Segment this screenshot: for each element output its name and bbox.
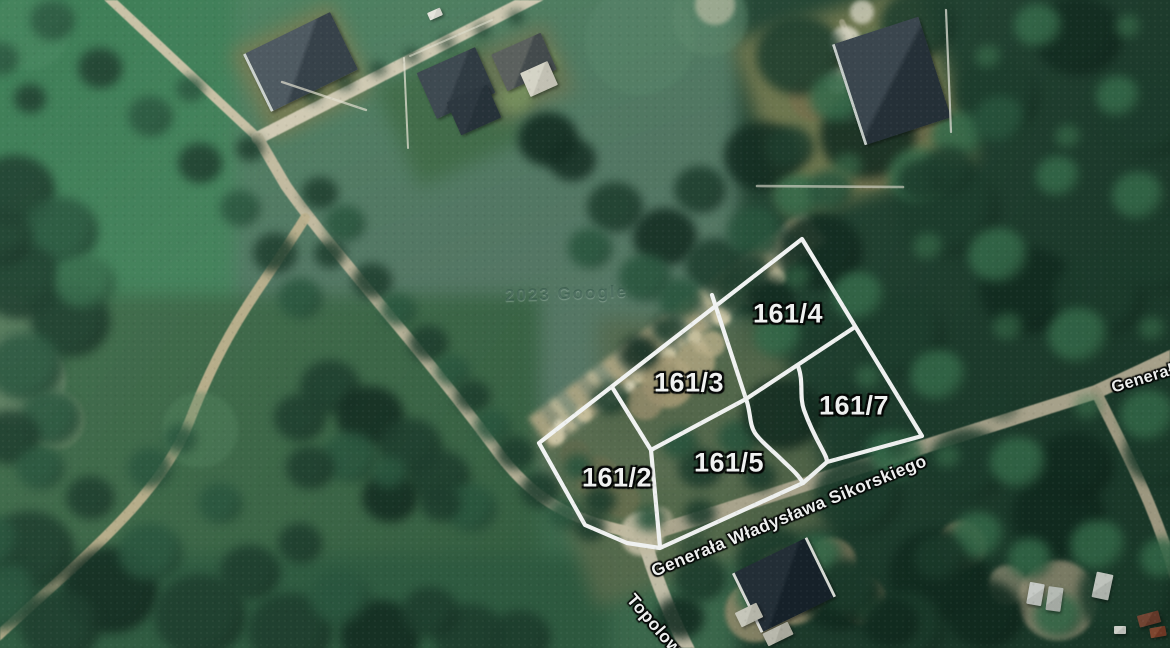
parcel-label-161-5: 161/5	[694, 448, 764, 479]
parcel-label-161-4: 161/4	[753, 299, 823, 330]
parcel-label-161-2: 161/2	[582, 463, 652, 494]
street-label-1: Generała	[1109, 358, 1170, 398]
satellite-map[interactable]: 161/2161/3161/4161/5161/7Generała Władys…	[0, 0, 1170, 648]
parcel-label-161-7: 161/7	[819, 391, 889, 422]
parcel-label-161-3: 161/3	[654, 368, 724, 399]
street-label-2: Topolowa	[622, 590, 693, 648]
labels-layer: 161/2161/3161/4161/5161/7Generała Władys…	[0, 0, 1170, 648]
imagery-watermark: 2023 Google	[505, 282, 629, 306]
street-label-0: Generała Władysława Sikorskiego	[648, 450, 929, 581]
